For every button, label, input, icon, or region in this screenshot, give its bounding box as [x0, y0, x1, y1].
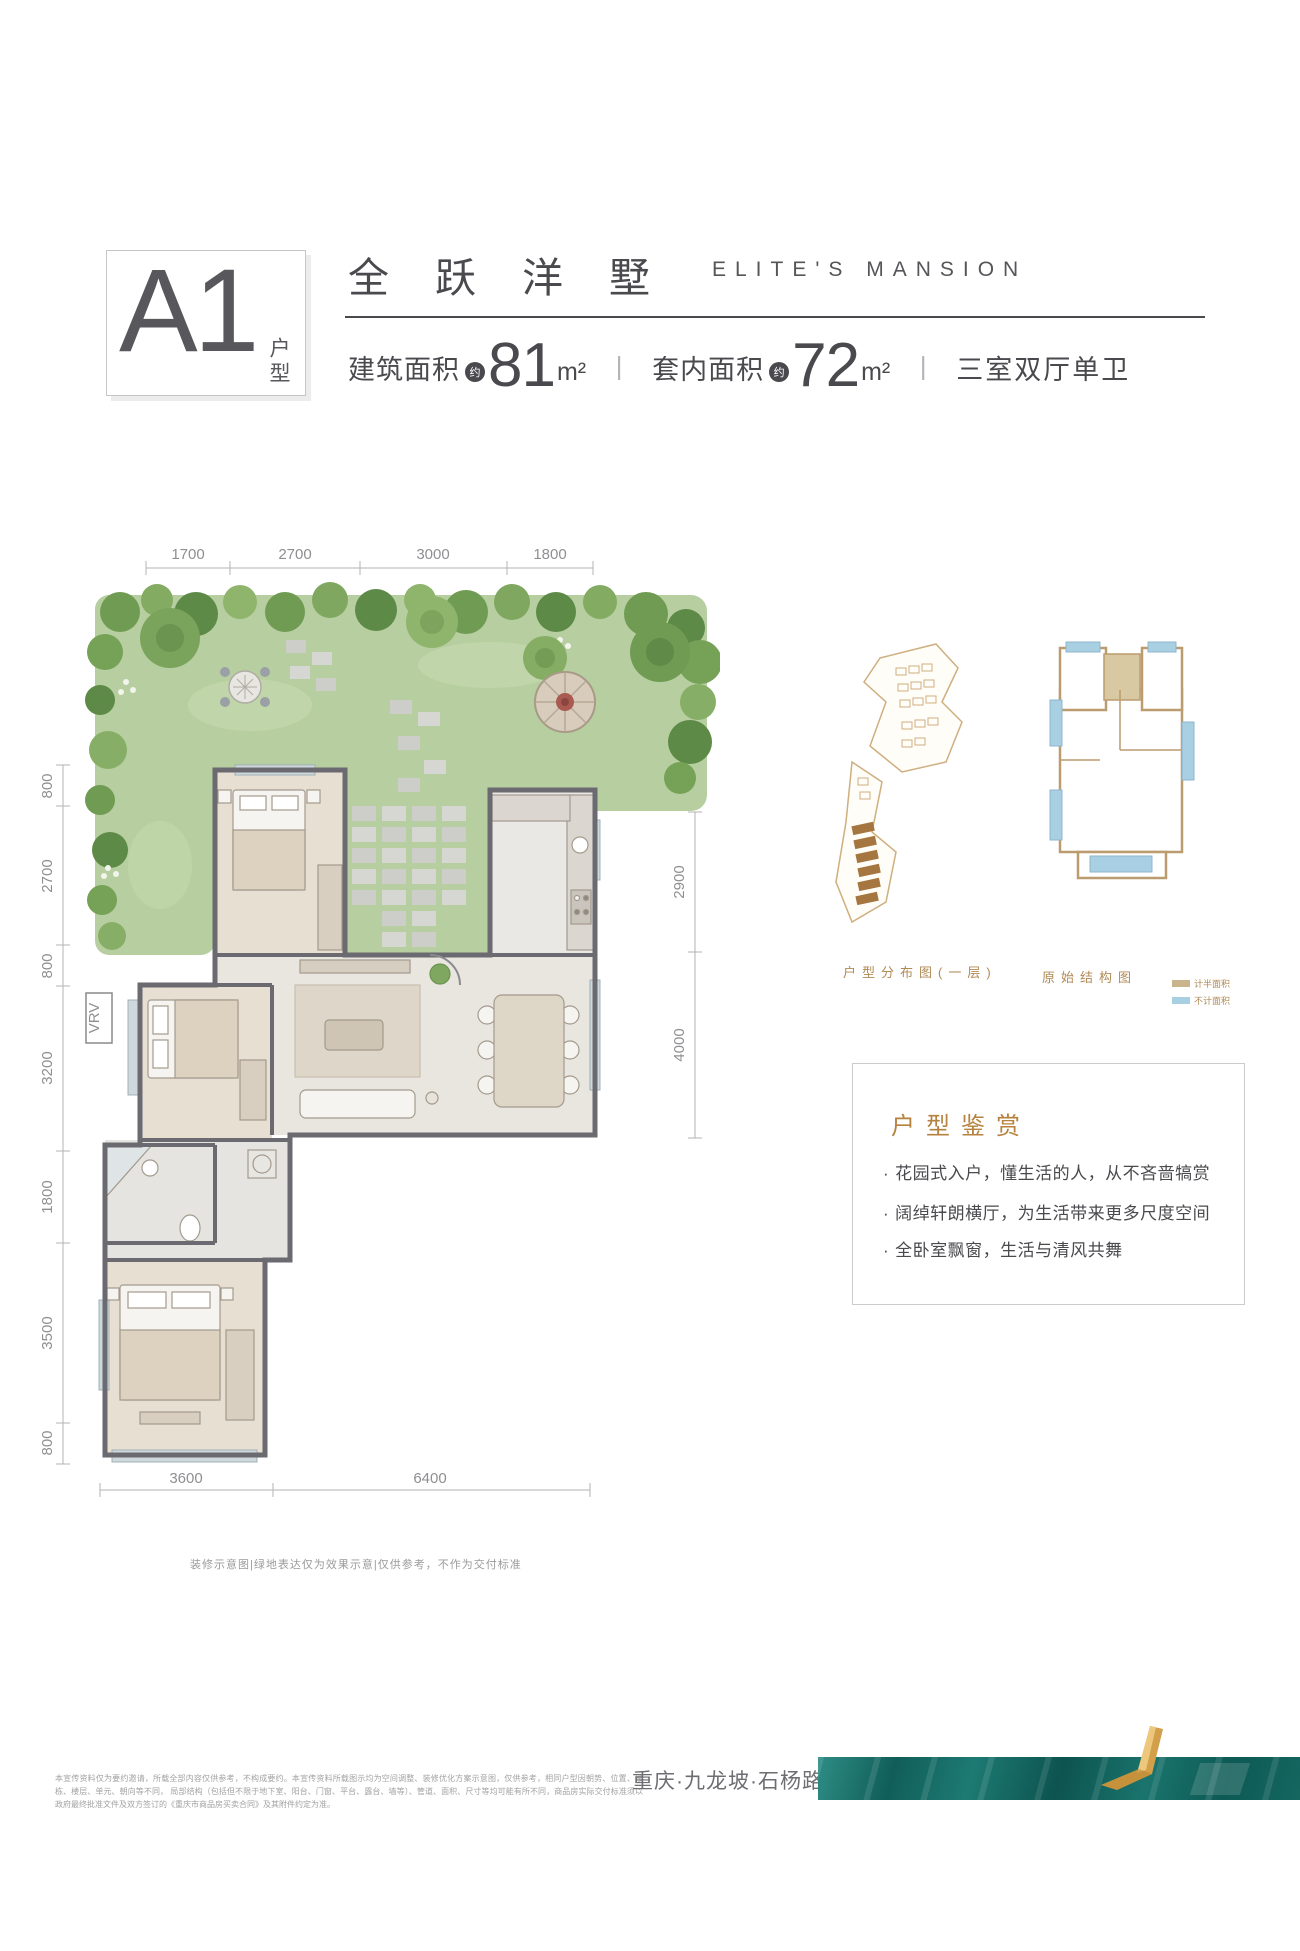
legend-label: 不计面积: [1194, 994, 1230, 1007]
disclaimer: 本宣传资料仅为要约邀请，所载全部内容仅供参考，不构成要约。本宣传资料所载图示均为…: [55, 1772, 643, 1811]
bullet-marker: ·: [883, 1164, 889, 1183]
unit-badge: A1 户型: [106, 250, 306, 396]
dim-label: 3200: [39, 1051, 56, 1084]
garden: [85, 582, 720, 956]
side-diagrams: [815, 630, 1285, 960]
inner-area-unit: m²: [861, 358, 890, 394]
build-area-value: 81: [488, 339, 555, 394]
legend-swatch-none: [1172, 997, 1190, 1004]
dim-label: 3000: [416, 546, 449, 563]
structure-caption: 原始结构图: [1042, 967, 1137, 986]
separator: 丨: [890, 349, 956, 394]
vrv-unit: VRV: [86, 993, 112, 1043]
appreciation-title: 户型鉴赏: [891, 1106, 1031, 1141]
area-row: 建筑面积 约 81 m² 丨 套内面积 约 72 m² 丨 三室双厅单卫: [348, 330, 1130, 394]
vrv-label: VRV: [86, 1003, 103, 1034]
inner-area-label: 套内面积: [652, 348, 764, 394]
dim-label: 1700: [171, 546, 204, 563]
dim-label: 800: [39, 953, 56, 978]
project-title-cn: 全跃洋墅: [348, 244, 696, 304]
brand-band: [818, 1757, 1300, 1800]
plan-note: 装修示意图|绿地表达仅为效果示意|仅供参考，不作为交付标准: [190, 1556, 522, 1572]
bullet-marker: ·: [883, 1241, 889, 1260]
legend-label: 计半面积: [1194, 977, 1230, 990]
dim-label: 1800: [533, 546, 566, 563]
bullet-marker: ·: [883, 1204, 889, 1223]
dim-label: 2700: [39, 859, 56, 892]
bullet-text: 花园式入户，懂生活的人，从不吝啬犒赏: [895, 1164, 1210, 1183]
legend-item: 不计面积: [1172, 994, 1230, 1007]
flyer-page: A1 户型 全跃洋墅 ELITE'S MANSION 建筑面积 约 81 m² …: [0, 0, 1300, 1951]
dim-label: 1800: [39, 1180, 56, 1213]
legend: 计半面积 不计面积: [1172, 977, 1230, 1011]
dim-label: 6400: [413, 1470, 446, 1487]
header-divider: [345, 316, 1205, 318]
approx-badge: 约: [465, 362, 485, 382]
project-title-en: ELITE'S MANSION: [712, 258, 1027, 282]
floor-plan: VRV 1700 2700 3000 1800 800 2700 800 320…: [20, 520, 720, 1590]
approx-badge: 约: [769, 362, 789, 382]
dim-label: 4000: [671, 1028, 688, 1061]
inner-area-value: 72: [792, 339, 859, 394]
bullet-text: 阔绰轩朗横厅，为生活带来更多尺度空间: [895, 1204, 1210, 1223]
layout-type: 三室双厅单卫: [956, 348, 1130, 394]
distribution-caption: 户型分布图(一层): [843, 962, 997, 981]
dim-label: 800: [39, 773, 56, 798]
dim-label: 800: [39, 1430, 56, 1455]
bed-icon: [218, 790, 320, 890]
unit-type-label: 户型: [263, 337, 293, 387]
distribution-diagram: [836, 644, 962, 922]
dim-label: 3600: [169, 1470, 202, 1487]
dining-table-icon: [478, 995, 579, 1107]
unit-code: A1: [119, 235, 255, 388]
structure-diagram: [1050, 642, 1194, 878]
gold-ribbon-icon: [1095, 1722, 1205, 1802]
appreciation-bullet: ·全卧室飘窗，生活与清风共舞: [883, 1236, 1123, 1261]
location-text: 重庆·九龙坡·石杨路: [632, 1765, 824, 1795]
dim-label: 2700: [278, 546, 311, 563]
separator: 丨: [586, 349, 652, 394]
appreciation-bullet: ·阔绰轩朗横厅，为生活带来更多尺度空间: [883, 1199, 1210, 1224]
build-area-unit: m²: [557, 358, 586, 394]
legend-swatch-half: [1172, 980, 1190, 987]
bullet-text: 全卧室飘窗，生活与清风共舞: [895, 1241, 1123, 1260]
dim-label: 2900: [671, 865, 688, 898]
build-area-label: 建筑面积: [348, 348, 460, 394]
appreciation-card: 户型鉴赏 ·花园式入户，懂生活的人，从不吝啬犒赏 ·阔绰轩朗横厅，为生活带来更多…: [852, 1063, 1245, 1305]
dim-label: 3500: [39, 1316, 56, 1349]
appreciation-bullet: ·花园式入户，懂生活的人，从不吝啬犒赏: [883, 1159, 1210, 1184]
wardrobe-icon: [318, 865, 342, 950]
gazebo: [535, 672, 595, 732]
legend-item: 计半面积: [1172, 977, 1230, 990]
